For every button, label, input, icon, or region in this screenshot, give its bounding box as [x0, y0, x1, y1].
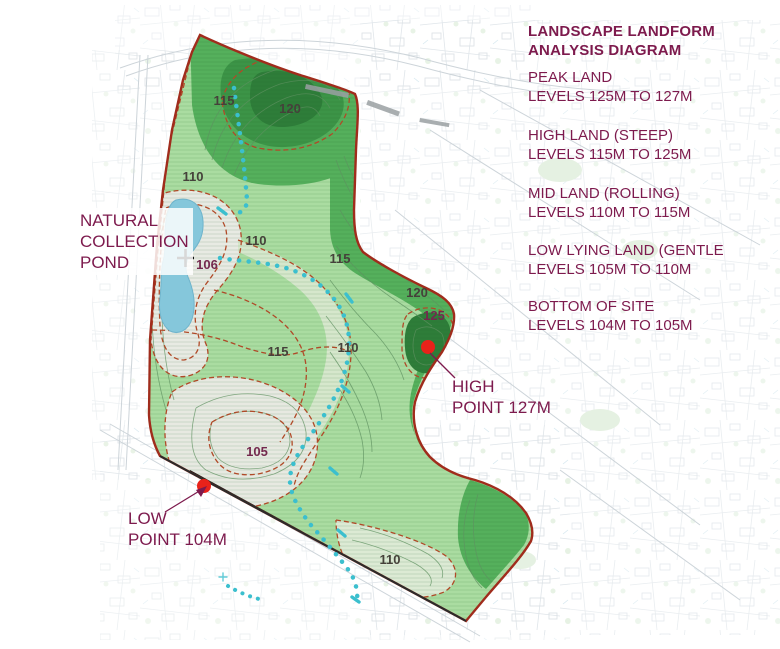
high-point-marker — [421, 340, 435, 354]
contour-label: 110 — [246, 233, 267, 248]
legend-item-levels: LEVELS 105M TO 110M — [528, 260, 724, 279]
legend-item-high-land: HIGH LAND (STEEP) LEVELS 115M TO 125M — [528, 126, 691, 164]
legend-item-name: PEAK LAND — [528, 68, 693, 87]
legend-item-bottom-of-site: BOTTOM OF SITE LEVELS 104M TO 105M — [528, 297, 693, 335]
diagram-title: LANDSCAPE LANDFORM ANALYSIS DIAGRAM — [528, 22, 715, 60]
contour-label: 110 — [338, 340, 359, 355]
contour-label: 105 — [246, 444, 268, 459]
contour-label: 125 — [423, 308, 445, 323]
contour-label: 115 — [330, 251, 351, 266]
spot-height-label: 106 — [196, 257, 218, 272]
contour-label: 110 — [183, 169, 204, 184]
legend-item-levels: LEVELS 115M TO 125M — [528, 145, 691, 164]
legend-item-low-lying-land: LOW LYING LAND (GENTLE LEVELS 105M TO 11… — [528, 241, 724, 279]
contour-label: 120 — [279, 101, 301, 116]
contour-label: 115 — [268, 344, 289, 359]
legend-item-name: LOW LYING LAND (GENTLE — [528, 241, 724, 260]
legend-item-name: MID LAND (ROLLING) — [528, 184, 690, 203]
landform-analysis-diagram: 115 120 110 110 115 106 115 110 120 125 … — [0, 0, 780, 649]
legend-item-peak-land: PEAK LAND LEVELS 125M TO 127M — [528, 68, 693, 106]
legend-item-levels: LEVELS 110M TO 115M — [528, 203, 690, 222]
legend-item-levels: LEVELS 125M TO 127M — [528, 87, 693, 106]
contour-label: 115 — [214, 93, 235, 108]
contour-label: 120 — [406, 285, 428, 300]
pond-annotation-label: NATURAL COLLECTION POND — [76, 208, 193, 275]
legend-item-levels: LEVELS 104M TO 105M — [528, 316, 693, 335]
legend-item-name: HIGH LAND (STEEP) — [528, 126, 691, 145]
high-point-annotation-label: HIGH POINT 127M — [452, 376, 551, 418]
contour-label: 110 — [380, 552, 401, 567]
legend-item-name: BOTTOM OF SITE — [528, 297, 693, 316]
low-point-annotation-label: LOW POINT 104M — [128, 508, 227, 550]
legend-item-mid-land: MID LAND (ROLLING) LEVELS 110M TO 115M — [528, 184, 690, 222]
